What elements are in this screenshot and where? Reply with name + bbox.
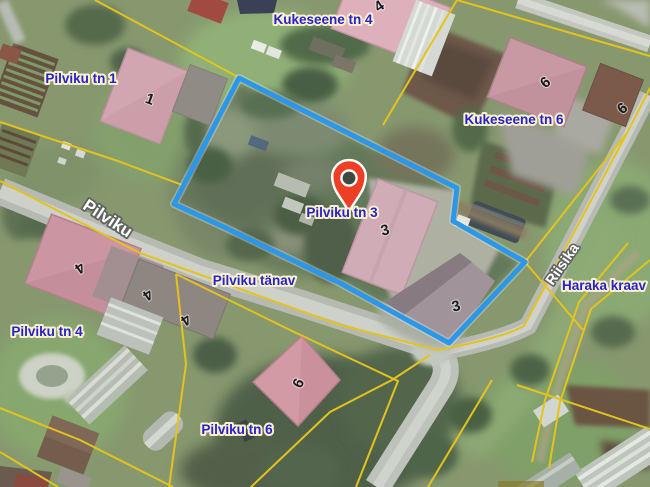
svg-text:Kukeseene tn 4: Kukeseene tn 4 xyxy=(273,12,373,27)
svg-text:Kukeseene tn 6: Kukeseene tn 6 xyxy=(464,112,564,127)
svg-text:Haraka kraav: Haraka kraav xyxy=(562,278,647,293)
svg-text:Pilviku tn 4: Pilviku tn 4 xyxy=(11,324,83,339)
svg-text:Pilviku tn 1: Pilviku tn 1 xyxy=(45,71,117,86)
svg-text:Pilviku tn 6: Pilviku tn 6 xyxy=(201,422,273,437)
svg-text:Pilviku tänav: Pilviku tänav xyxy=(213,273,296,288)
svg-text:Pilviku tn 3: Pilviku tn 3 xyxy=(306,205,378,220)
